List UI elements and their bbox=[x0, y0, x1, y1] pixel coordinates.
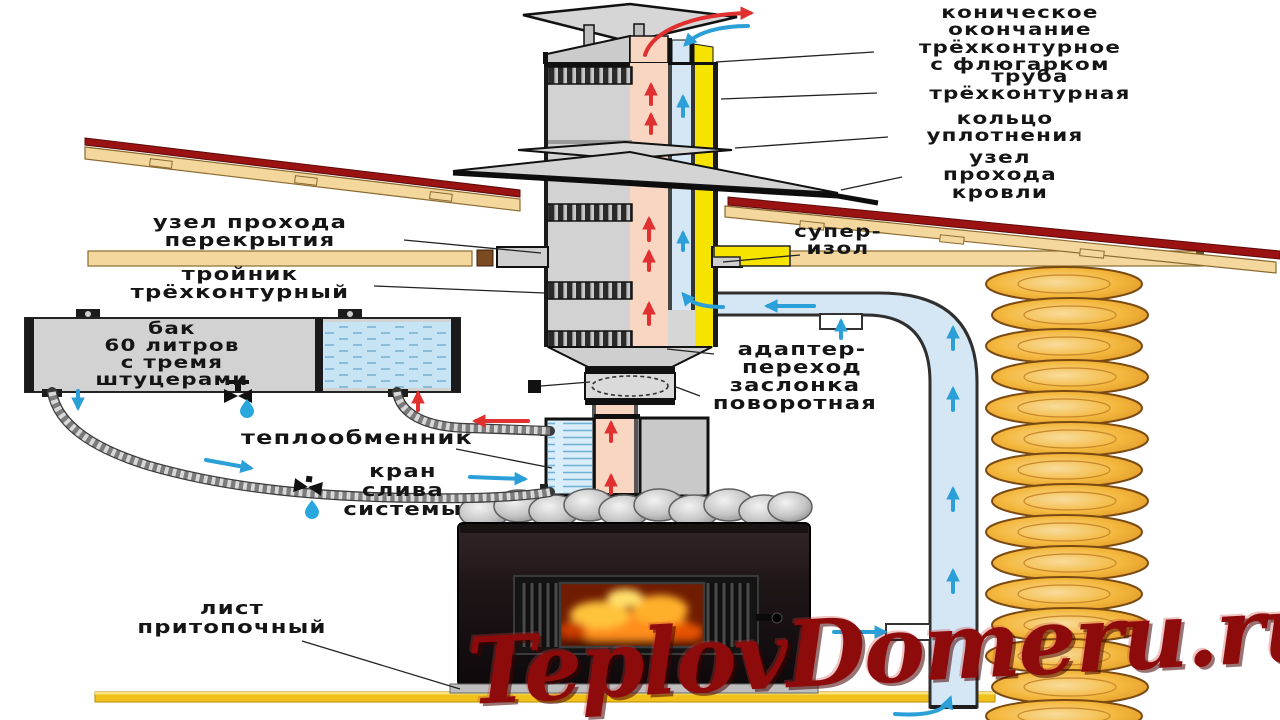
label-heat-exchanger: теплообменник bbox=[155, 429, 558, 448]
chimney-installation-diagram: коническое окончание трёхконтурное с флю… bbox=[0, 0, 1280, 720]
label-super-isol: супер- изол bbox=[649, 224, 1027, 259]
label-conical-ending: коническое окончание трёхконтурное с флю… bbox=[831, 5, 1209, 74]
label-roof-passage: узел прохода кровли bbox=[811, 150, 1189, 202]
label-sealing-ring: кольцо уплотнения bbox=[816, 111, 1194, 146]
label-tee-three-contour: тройник трёхконтурный bbox=[51, 266, 429, 303]
blue-curved-arrow bbox=[686, 26, 748, 44]
label-pipe-three-contour: труба трёхконтурная bbox=[841, 69, 1219, 104]
label-rotary-damper: заслонка поворотная bbox=[606, 377, 984, 414]
label-hearth-sheet: лист притопочный bbox=[43, 599, 421, 637]
damper-handle bbox=[528, 380, 541, 393]
label-ceiling-passage: узел прохода перекрытия bbox=[61, 214, 439, 251]
label-adapter: адаптер- переход bbox=[613, 341, 991, 378]
label-tank-60l: бак 60 литров с тремя штуцерами bbox=[0, 321, 348, 389]
label-drain-valve: кран слива системы bbox=[214, 462, 592, 519]
